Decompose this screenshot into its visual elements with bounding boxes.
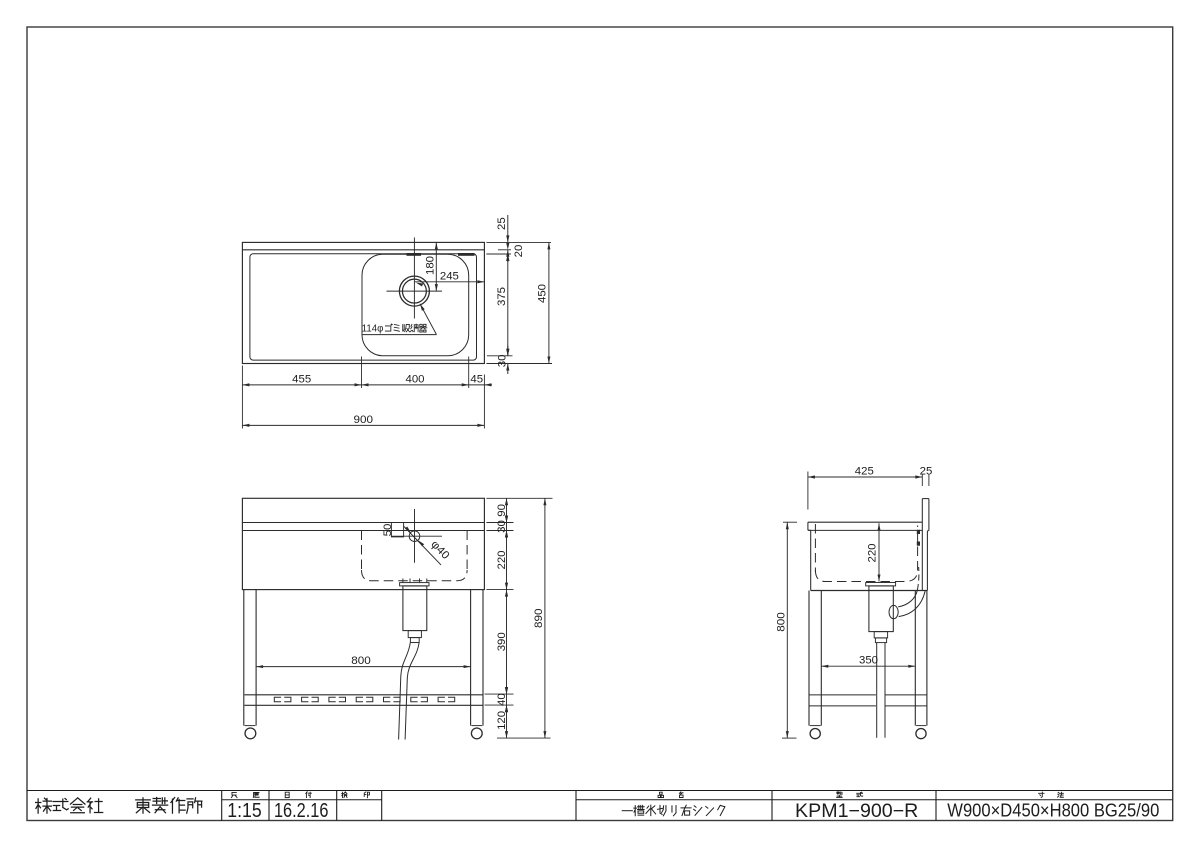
svg-text:45: 45	[470, 373, 483, 385]
svg-text:16.2.16: 16.2.16	[274, 799, 329, 822]
svg-text:425: 425	[855, 466, 874, 478]
svg-text:W900×D450×H800 BG25/90: W900×D450×H800 BG25/90	[947, 801, 1159, 821]
svg-text:800: 800	[776, 612, 788, 632]
svg-text:450: 450	[536, 284, 548, 303]
svg-text:390: 390	[496, 632, 508, 651]
svg-text:50: 50	[382, 524, 394, 537]
svg-text:800: 800	[351, 655, 371, 667]
svg-text:455: 455	[292, 373, 311, 385]
svg-text:400: 400	[406, 373, 425, 385]
svg-text:890: 890	[533, 609, 545, 629]
svg-text:120: 120	[496, 711, 508, 730]
svg-text:KPM1−900−R: KPM1−900−R	[795, 801, 918, 822]
svg-text:30: 30	[496, 520, 508, 533]
svg-text:114φ: 114φ	[362, 324, 384, 335]
svg-text:20: 20	[513, 245, 525, 258]
svg-text:25: 25	[496, 217, 508, 230]
svg-text:900: 900	[354, 414, 374, 426]
svg-text:180: 180	[424, 256, 436, 275]
svg-text:220: 220	[496, 551, 508, 570]
svg-text:25: 25	[920, 466, 933, 478]
svg-text:30: 30	[497, 355, 509, 368]
svg-text:220: 220	[866, 544, 878, 563]
svg-text:40: 40	[496, 693, 508, 706]
svg-text:350: 350	[859, 655, 878, 667]
svg-text:245: 245	[440, 271, 459, 283]
svg-text:1:15: 1:15	[227, 799, 261, 822]
svg-text:90: 90	[496, 504, 508, 517]
svg-text:375: 375	[496, 287, 508, 306]
